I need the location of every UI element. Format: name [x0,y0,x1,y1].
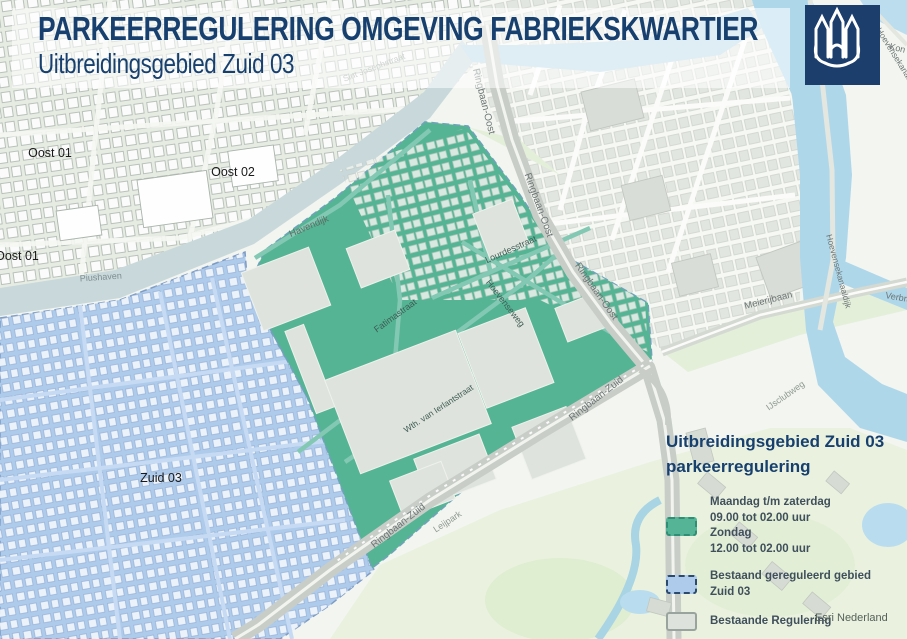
legend-line: 12.00 tot 02.00 uur [710,542,831,558]
area-label-zuid03: Zuid 03 [140,471,182,485]
gemeente-tilburg-logo [805,5,880,85]
legend: Uitbreidingsgebied Zuid 03 parkeerregule… [666,430,906,631]
legend-swatch-gray [666,612,697,631]
map-page: Sint Josephstraat Havendijk Ringbaan-Oos… [0,0,907,639]
legend-item-text: Bestaand gereguleerd gebied Zuid 03 [710,569,871,600]
legend-item-existing-regulated: Bestaand gereguleerd gebied Zuid 03 [666,569,906,600]
area-label-oost02: Oost 02 [211,165,255,179]
page-subtitle: Uitbreidingsgebied Zuid 03 [38,49,640,80]
legend-line: Zondag [710,526,831,542]
legend-item-text: Bestaande Regulering [710,614,831,630]
legend-title: Uitbreidingsgebied Zuid 03 parkeerregule… [666,430,906,479]
legend-item-text: Maandag t/m zaterdag 09.00 tot 02.00 uur… [710,495,831,557]
legend-line: Bestaande Regulering [710,614,831,630]
castle-icon [805,5,865,69]
legend-swatch-teal [666,517,697,536]
legend-line: Zuid 03 [710,585,871,601]
area-label-oost01-west: Oost 01 [0,249,39,263]
legend-line: Maandag t/m zaterdag [710,495,831,511]
legend-item-new-regulation: Maandag t/m zaterdag 09.00 tot 02.00 uur… [666,495,906,557]
legend-swatch-blue [666,575,697,594]
legend-line: Bestaand gereguleerd gebied [710,569,871,585]
legend-title-line1: Uitbreidingsgebied Zuid 03 [666,432,884,451]
area-label-oost01: Oost 01 [28,146,72,160]
legend-line: 09.00 tot 02.00 uur [710,511,831,527]
legend-title-line2: parkeerregulering [666,457,811,476]
esri-attribution: Esri Nederland [815,612,888,624]
page-title: PARKEERREGULERING OMGEVING FABRIEKSKWART… [38,12,640,47]
title-band: PARKEERREGULERING OMGEVING FABRIEKSKWART… [12,8,790,88]
